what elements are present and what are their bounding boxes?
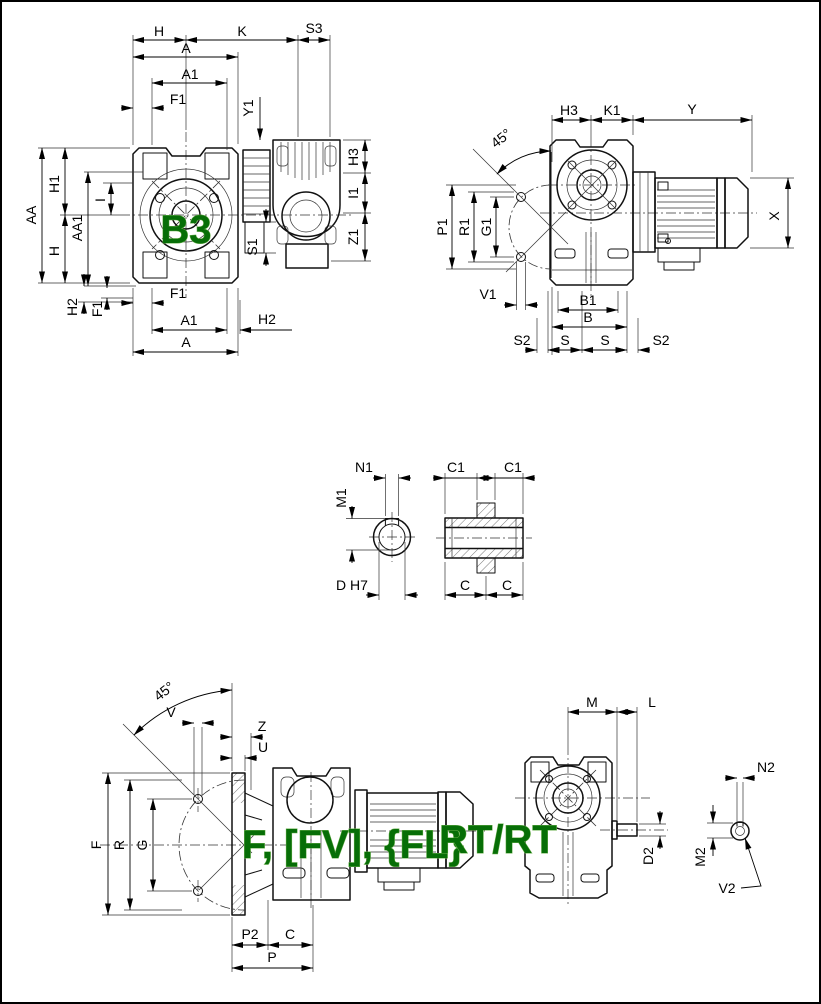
dim-label-k1: K1 [603,102,620,118]
dim-label-p: P [267,949,276,965]
dim-label-h3-right: H3 [345,148,361,166]
dim-label-aa1: AA1 [69,215,85,242]
dim-label-i1: I1 [345,187,361,199]
dim-label-b1: B1 [579,292,596,308]
dim-label-i: I [92,198,108,202]
dim-label-aa: AA [23,205,39,224]
dim-label-m: M [586,694,598,710]
dim-label-h-left: H [46,246,62,256]
dim-label-b: B [583,309,592,325]
dim-label-a-top: A [181,40,191,56]
dim-label-u: U [258,739,268,755]
dim-label-f1-bottom: F1 [170,285,187,301]
dim-label-c-left: C [460,577,470,593]
dim-label-g: G [134,840,150,851]
dim-label-a1-bottom: A1 [180,312,197,328]
view-title-flange: F, [FV], {FL} [242,823,464,867]
dim-label-d-h7: D H7 [336,577,368,593]
dim-label-n1: N1 [355,459,373,475]
dim-label-r1: R1 [456,218,472,236]
dim-label-s3: S3 [305,20,322,36]
dim-label-p2: P2 [241,926,258,942]
dim-label-h2-left: H2 [64,298,80,316]
dim-label-f: F [88,841,104,850]
dim-label-h2-bottom: H2 [258,311,276,327]
dim-label-c-right: C [502,577,512,593]
dim-label-z1: Z1 [345,229,361,246]
dim-label-m1: M1 [333,488,349,508]
dim-label-d2: D2 [640,847,656,865]
view-title-b3: B3 [160,208,211,252]
dim-label-h-top: H [154,23,164,39]
dim-label-v: V [166,704,176,720]
dim-label-r: R [111,840,127,850]
dim-label-z: Z [258,718,267,734]
dim-label-n2: N2 [757,759,775,775]
dim-label-s2-left: S2 [513,332,530,348]
dim-label-f1-top: F1 [170,91,187,107]
dim-label-c1-left: C1 [447,459,465,475]
dim-label-s2-right: S2 [652,332,669,348]
dim-label-h3-side: H3 [560,102,578,118]
dim-label-y1: Y1 [240,99,256,116]
dim-label-v1: V1 [479,286,496,302]
dim-label-g1: G1 [478,217,494,236]
dim-label-m2: M2 [692,847,708,867]
gearbox-dimensional-drawing-page: H K S3 A A1 F1 Y1 AA H1 H AA1 I H2 F1 H3… [0,0,821,1004]
technical-drawing: H K S3 A A1 F1 Y1 AA H1 H AA1 I H2 F1 H3… [0,0,821,1004]
dim-label-k: K [237,23,247,39]
dim-label-x: X [766,211,782,221]
dim-label-y: Y [687,101,697,117]
dim-label-c1-right: C1 [504,459,522,475]
dim-label-h1: H1 [46,175,62,193]
dim-label-l: L [648,694,656,710]
dim-label-f1-left: F1 [89,301,105,318]
dim-label-s-left: S [560,332,569,348]
dim-label-a-bottom: A [181,334,191,350]
view-title-rt: RT/RT [439,818,557,862]
dim-label-c-flange: C [285,926,295,942]
dim-label-v2: V2 [718,880,735,896]
dim-label-p1: P1 [434,218,450,235]
dim-label-s-right: S [600,332,609,348]
dim-label-s1: S1 [244,238,260,255]
dim-label-a1-top: A1 [181,66,198,82]
